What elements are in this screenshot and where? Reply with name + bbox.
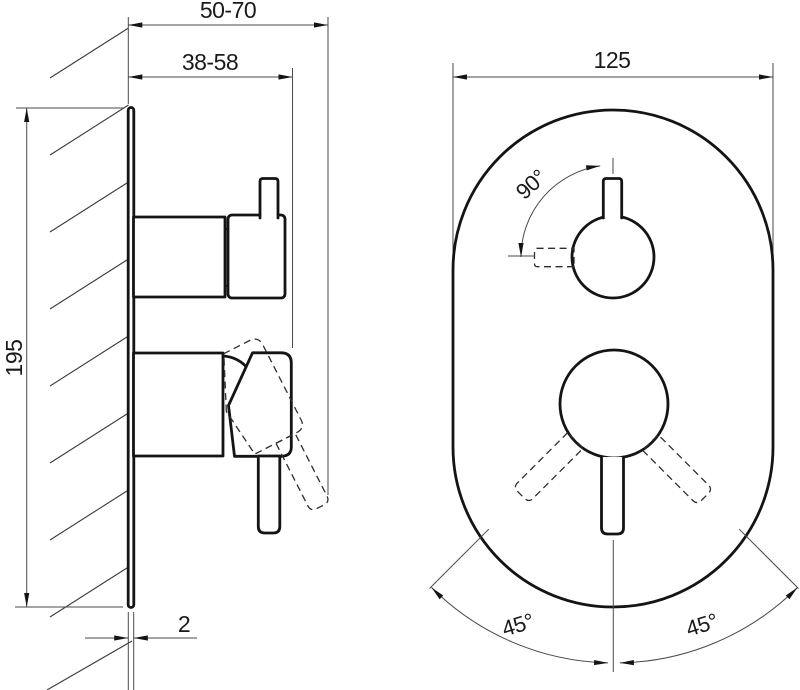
annotation-45-left-label: 45°: [499, 608, 537, 641]
dimension-outer-depth: 50-70: [128, 0, 328, 25]
technical-drawing-canvas: 50-70 38-58 195 2 125: [0, 0, 800, 690]
annotation-45-right-label: 45°: [683, 608, 721, 641]
mixer-installation-drawing: 50-70 38-58 195 2 125: [0, 0, 800, 690]
upper-valve-body: [134, 217, 226, 297]
dimension-plate-thickness-label: 2: [178, 611, 190, 637]
dimension-height: 195: [1, 108, 27, 607]
thermostat-knob-stem: [603, 179, 621, 219]
lever-knob-stem: [602, 457, 624, 534]
front-view: 125 90°: [430, 47, 799, 672]
dimension-inner-depth-label: 38-58: [182, 49, 238, 75]
upper-valve-stem: [260, 179, 278, 219]
dimension-faceplate-width: 125: [453, 47, 773, 77]
dimension-height-label: 195: [1, 340, 27, 377]
side-view: 50-70 38-58 195 2: [1, 0, 340, 690]
dimension-outer-depth-label: 50-70: [200, 0, 256, 23]
upper-valve-side: [134, 179, 286, 299]
dimension-faceplate-width-label: 125: [594, 47, 631, 73]
upper-valve-escutcheon: [228, 215, 285, 298]
lower-lever-side: [134, 336, 341, 533]
lever-knob-circle: [560, 350, 668, 458]
dimension-inner-depth: 38-58: [128, 49, 292, 77]
lower-valve-body: [134, 353, 224, 456]
wall-hatching: [47, 28, 132, 690]
thermostat-knob-circle: [572, 216, 654, 298]
dimension-plate-thickness: 2: [85, 611, 197, 638]
lever-stem: [258, 456, 280, 533]
